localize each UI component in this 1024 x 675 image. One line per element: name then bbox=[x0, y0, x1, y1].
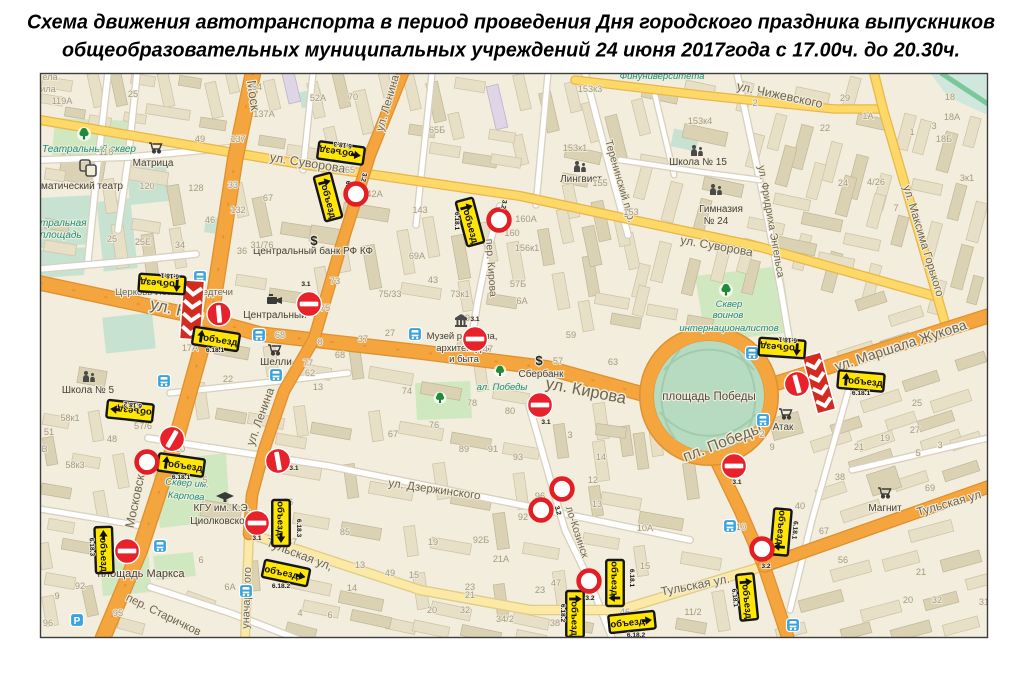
svg-text:Театральный сквер: Театральный сквер bbox=[42, 144, 136, 155]
svg-text:40: 40 bbox=[795, 501, 805, 511]
svg-text:3: 3 bbox=[937, 440, 942, 450]
svg-text:объезд: объезд bbox=[569, 601, 580, 636]
svg-text:33: 33 bbox=[228, 180, 238, 190]
svg-text:69: 69 bbox=[925, 483, 935, 493]
svg-text:6: 6 bbox=[198, 555, 203, 565]
svg-text:6.18.1: 6.18.1 bbox=[206, 347, 225, 354]
svg-text:22: 22 bbox=[223, 374, 233, 384]
svg-text:3.1: 3.1 bbox=[301, 281, 310, 288]
svg-text:153: 153 bbox=[623, 207, 638, 217]
svg-text:площадь Победы: площадь Победы bbox=[662, 391, 755, 403]
svg-text:27: 27 bbox=[910, 425, 920, 435]
svg-text:Схема движения автотранспорта: Схема движения автотранспорта в период п… bbox=[27, 11, 995, 34]
svg-text:62: 62 bbox=[305, 368, 315, 378]
svg-text:20: 20 bbox=[903, 595, 913, 605]
svg-text:91: 91 bbox=[488, 444, 498, 454]
svg-text:58к1: 58к1 bbox=[60, 413, 79, 423]
svg-text:89: 89 bbox=[459, 444, 469, 454]
svg-text:10А: 10А bbox=[637, 523, 654, 533]
svg-text:77: 77 bbox=[303, 358, 313, 368]
svg-text:153к1: 153к1 bbox=[563, 143, 587, 153]
svg-text:3.1: 3.1 bbox=[732, 479, 741, 486]
svg-text:№ 24: № 24 bbox=[704, 216, 729, 227]
svg-text:37: 37 bbox=[358, 334, 368, 344]
svg-text:3.1: 3.1 bbox=[289, 465, 298, 472]
svg-text:34/2: 34/2 bbox=[496, 614, 514, 624]
svg-text:92: 92 bbox=[518, 512, 528, 522]
svg-text:78: 78 bbox=[467, 398, 477, 408]
svg-text:36: 36 bbox=[237, 246, 247, 256]
svg-text:3.1: 3.1 bbox=[252, 535, 261, 542]
svg-text:1: 1 bbox=[909, 127, 914, 137]
svg-text:74: 74 bbox=[402, 386, 412, 396]
svg-text:тральная: тральная bbox=[40, 218, 87, 229]
svg-text:58к3: 58к3 bbox=[65, 460, 84, 470]
svg-text:матический театр: матический театр bbox=[41, 181, 123, 192]
svg-text:1А: 1А bbox=[862, 111, 874, 121]
svg-text:Матрица: Матрица bbox=[133, 158, 174, 169]
svg-text:6А: 6А bbox=[516, 296, 528, 306]
svg-text:ал. Победы: ал. Победы bbox=[477, 382, 528, 393]
svg-text:Сквер: Сквер bbox=[716, 299, 743, 310]
svg-text:12: 12 bbox=[588, 475, 598, 485]
svg-text:Магнит: Магнит bbox=[868, 503, 902, 514]
svg-text:156к1: 156к1 bbox=[515, 243, 539, 253]
svg-text:68: 68 bbox=[275, 330, 285, 340]
svg-text:49: 49 bbox=[385, 568, 395, 578]
svg-text:155: 155 bbox=[592, 178, 607, 188]
svg-text:118: 118 bbox=[99, 147, 114, 157]
svg-text:Атак: Атак bbox=[773, 422, 794, 433]
svg-text:21: 21 bbox=[465, 590, 475, 600]
svg-text:и быта: и быта bbox=[449, 354, 479, 365]
svg-text:85: 85 bbox=[340, 527, 350, 537]
svg-text:47: 47 bbox=[551, 578, 561, 588]
svg-text:объезд: объезд bbox=[97, 537, 109, 572]
svg-text:7: 7 bbox=[893, 203, 898, 213]
svg-text:93: 93 bbox=[513, 452, 523, 462]
svg-text:18Б: 18Б bbox=[936, 134, 952, 144]
svg-text:38: 38 bbox=[835, 472, 845, 482]
svg-text:32: 32 bbox=[932, 595, 942, 605]
svg-text:3.2: 3.2 bbox=[761, 563, 770, 570]
svg-text:11/2: 11/2 bbox=[684, 607, 701, 617]
svg-text:общеобразовательных муниципаль: общеобразовательных муниципальных учрежд… bbox=[62, 39, 960, 62]
svg-text:6.18.1: 6.18.1 bbox=[778, 335, 797, 343]
svg-text:132: 132 bbox=[230, 205, 245, 215]
svg-text:153к4: 153к4 bbox=[688, 116, 712, 126]
svg-text:68: 68 bbox=[335, 350, 345, 360]
svg-text:65: 65 bbox=[345, 165, 355, 175]
svg-text:160А: 160А bbox=[515, 214, 537, 224]
svg-text:51: 51 bbox=[44, 427, 54, 437]
svg-text:5: 5 bbox=[915, 448, 920, 458]
svg-text:объезд: объезд bbox=[609, 561, 620, 596]
svg-text:6.18.1: 6.18.1 bbox=[628, 569, 635, 588]
svg-text:13: 13 bbox=[592, 499, 602, 509]
svg-text:67: 67 bbox=[263, 193, 273, 203]
svg-text:9: 9 bbox=[54, 591, 59, 601]
svg-text:14: 14 bbox=[347, 583, 357, 593]
svg-text:48: 48 bbox=[107, 434, 117, 444]
svg-text:21А: 21А bbox=[493, 554, 510, 564]
svg-text:3.1: 3.1 bbox=[470, 316, 479, 323]
svg-text:6А: 6А bbox=[224, 582, 236, 592]
svg-text:$: $ bbox=[535, 353, 543, 368]
svg-text:P: P bbox=[74, 616, 81, 627]
svg-text:6.18.3: 6.18.3 bbox=[88, 538, 96, 557]
svg-text:3.1: 3.1 bbox=[541, 419, 550, 426]
svg-text:25: 25 bbox=[107, 234, 117, 244]
svg-text:ила: ила bbox=[40, 84, 56, 94]
svg-text:92Б: 92Б bbox=[473, 535, 489, 545]
svg-text:19: 19 bbox=[880, 433, 890, 443]
svg-text:6.18.2: 6.18.2 bbox=[559, 604, 566, 623]
svg-text:27: 27 bbox=[385, 328, 395, 338]
svg-text:153к3: 153к3 bbox=[578, 84, 602, 94]
svg-text:65Б: 65Б bbox=[429, 125, 445, 135]
svg-text:76: 76 bbox=[429, 420, 439, 430]
svg-text:54: 54 bbox=[252, 82, 262, 92]
svg-text:воинов: воинов bbox=[713, 310, 744, 321]
svg-text:3к1: 3к1 bbox=[960, 173, 974, 183]
svg-text:6.18.1: 6.18.1 bbox=[160, 271, 179, 279]
svg-text:67: 67 bbox=[819, 526, 829, 536]
svg-text:31/76: 31/76 bbox=[251, 240, 274, 250]
svg-text:80: 80 bbox=[505, 406, 515, 416]
svg-text:Шелли: Шелли bbox=[260, 357, 292, 368]
svg-text:площадь: площадь bbox=[40, 230, 82, 241]
svg-text:6.18.2: 6.18.2 bbox=[272, 583, 291, 590]
svg-text:49: 49 bbox=[195, 134, 205, 144]
svg-text:КГУ им. К.Э.: КГУ им. К.Э. bbox=[194, 503, 251, 514]
svg-text:13: 13 bbox=[355, 560, 365, 570]
svg-text:15: 15 bbox=[409, 570, 419, 580]
svg-text:3.2: 3.2 bbox=[585, 595, 594, 602]
svg-text:21: 21 bbox=[854, 442, 864, 452]
svg-text:137А: 137А bbox=[253, 109, 275, 119]
svg-text:18: 18 bbox=[945, 92, 955, 102]
svg-text:63: 63 bbox=[608, 357, 618, 367]
svg-text:34: 34 bbox=[175, 240, 185, 250]
svg-text:143: 143 bbox=[412, 205, 427, 215]
svg-text:2: 2 bbox=[752, 98, 757, 108]
svg-text:20: 20 bbox=[427, 605, 437, 615]
svg-text:3: 3 bbox=[931, 121, 936, 131]
svg-text:75/33: 75/33 bbox=[379, 289, 402, 299]
svg-text:Центральный: Центральный bbox=[243, 310, 307, 321]
svg-text:6.18.1: 6.18.1 bbox=[453, 212, 460, 231]
svg-text:92: 92 bbox=[75, 581, 85, 591]
svg-text:13: 13 bbox=[313, 382, 323, 392]
svg-text:6.18.1: 6.18.1 bbox=[852, 390, 871, 397]
svg-text:52А: 52А bbox=[310, 93, 327, 103]
svg-text:56: 56 bbox=[838, 555, 848, 565]
svg-text:95: 95 bbox=[113, 608, 123, 618]
svg-text:4/26: 4/26 bbox=[867, 177, 885, 187]
svg-text:19: 19 bbox=[428, 537, 438, 547]
svg-text:137: 137 bbox=[230, 134, 245, 144]
svg-text:43: 43 bbox=[428, 275, 438, 285]
svg-text:38: 38 bbox=[550, 618, 560, 628]
svg-text:96: 96 bbox=[43, 618, 53, 628]
svg-text:6.18.3: 6.18.3 bbox=[295, 519, 302, 538]
svg-text:14: 14 bbox=[596, 452, 606, 462]
svg-text:Школа № 5: Школа № 5 bbox=[62, 385, 115, 396]
svg-text:29: 29 bbox=[840, 93, 850, 103]
svg-text:24: 24 bbox=[838, 178, 848, 188]
svg-text:23: 23 bbox=[535, 585, 545, 595]
svg-text:119А: 119А bbox=[52, 96, 74, 106]
svg-text:18А: 18А bbox=[944, 112, 961, 122]
svg-text:69А: 69А bbox=[409, 251, 426, 261]
svg-text:22: 22 bbox=[820, 123, 830, 133]
svg-text:2: 2 bbox=[759, 429, 764, 439]
svg-text:73к1: 73к1 bbox=[450, 289, 469, 299]
svg-text:25Е: 25Е bbox=[135, 237, 151, 247]
svg-text:8: 8 bbox=[317, 337, 322, 347]
svg-text:57: 57 bbox=[553, 356, 563, 366]
svg-text:67: 67 bbox=[388, 429, 398, 439]
svg-text:интернационалистов: интернационалистов bbox=[679, 323, 778, 334]
svg-text:70: 70 bbox=[348, 92, 358, 102]
svg-text:9: 9 bbox=[769, 442, 774, 452]
svg-text:32: 32 bbox=[460, 605, 470, 615]
svg-text:120: 120 bbox=[139, 181, 154, 191]
svg-text:15: 15 bbox=[640, 561, 650, 571]
svg-text:25: 25 bbox=[128, 89, 138, 99]
svg-text:128: 128 bbox=[188, 183, 203, 193]
svg-text:25: 25 bbox=[912, 398, 922, 408]
svg-text:объезд: объезд bbox=[275, 501, 286, 536]
svg-text:Школа № 15: Школа № 15 bbox=[669, 157, 727, 168]
svg-text:59: 59 bbox=[566, 330, 576, 340]
svg-text:10: 10 bbox=[736, 522, 746, 532]
svg-text:57Б: 57Б bbox=[510, 279, 526, 289]
svg-text:3: 3 bbox=[567, 430, 572, 440]
svg-text:4: 4 bbox=[297, 608, 302, 618]
svg-text:73: 73 bbox=[330, 276, 340, 286]
svg-text:46: 46 bbox=[205, 215, 215, 225]
svg-text:6.18.1: 6.18.1 bbox=[172, 474, 191, 481]
svg-text:Сбербанк: Сбербанк bbox=[519, 368, 565, 380]
svg-text:Гимназия: Гимназия bbox=[699, 204, 743, 215]
svg-text:21: 21 bbox=[916, 567, 926, 577]
svg-text:6: 6 bbox=[327, 610, 332, 620]
svg-text:$: $ bbox=[310, 233, 318, 248]
